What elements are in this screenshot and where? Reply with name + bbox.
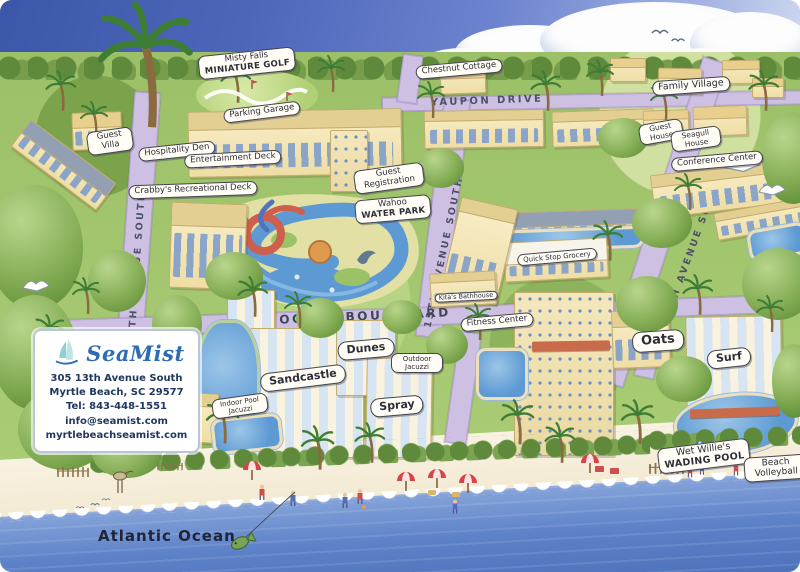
building-family-cottage [610, 58, 646, 82]
brand-name: SeaMist [86, 341, 184, 366]
sailboat-logo-icon [48, 338, 84, 368]
website-url: myrtlebeachseamist.com [35, 429, 198, 443]
label-outdoor-jacuzzi: Outdoor Jacuzzi [391, 353, 443, 373]
resort-map: YAUPON DRIVE 14TH AVENUE SOUTH 13TH AVEN… [0, 0, 800, 572]
atlantic-ocean-label: Atlantic Ocean [98, 527, 236, 545]
building-yaupon-row-a [424, 109, 545, 149]
label-beach-volleyball: Beach Volleyball [743, 453, 800, 482]
bush [88, 250, 146, 312]
bush [656, 356, 712, 402]
bush [382, 300, 422, 334]
building-family-cottage [752, 78, 784, 98]
bush [296, 298, 344, 338]
bush [205, 252, 263, 300]
phone-number: Tel: 843-448-1551 [35, 400, 198, 414]
address-line2: Myrtle Beach, SC 29577 [35, 386, 198, 400]
building-hospitality-den [187, 108, 402, 178]
email-address: info@seamist.com [35, 415, 198, 429]
label-oats: Oats [631, 329, 684, 353]
pool-cabana-roof [532, 340, 610, 351]
bush [632, 198, 692, 248]
bush [616, 276, 678, 332]
info-card: SeaMist 305 13th Avenue South Myrtle Bea… [33, 329, 200, 453]
bush [418, 148, 464, 188]
pool-main-tower-deck [476, 348, 528, 400]
address-line1: 305 13th Avenue South [35, 372, 198, 386]
